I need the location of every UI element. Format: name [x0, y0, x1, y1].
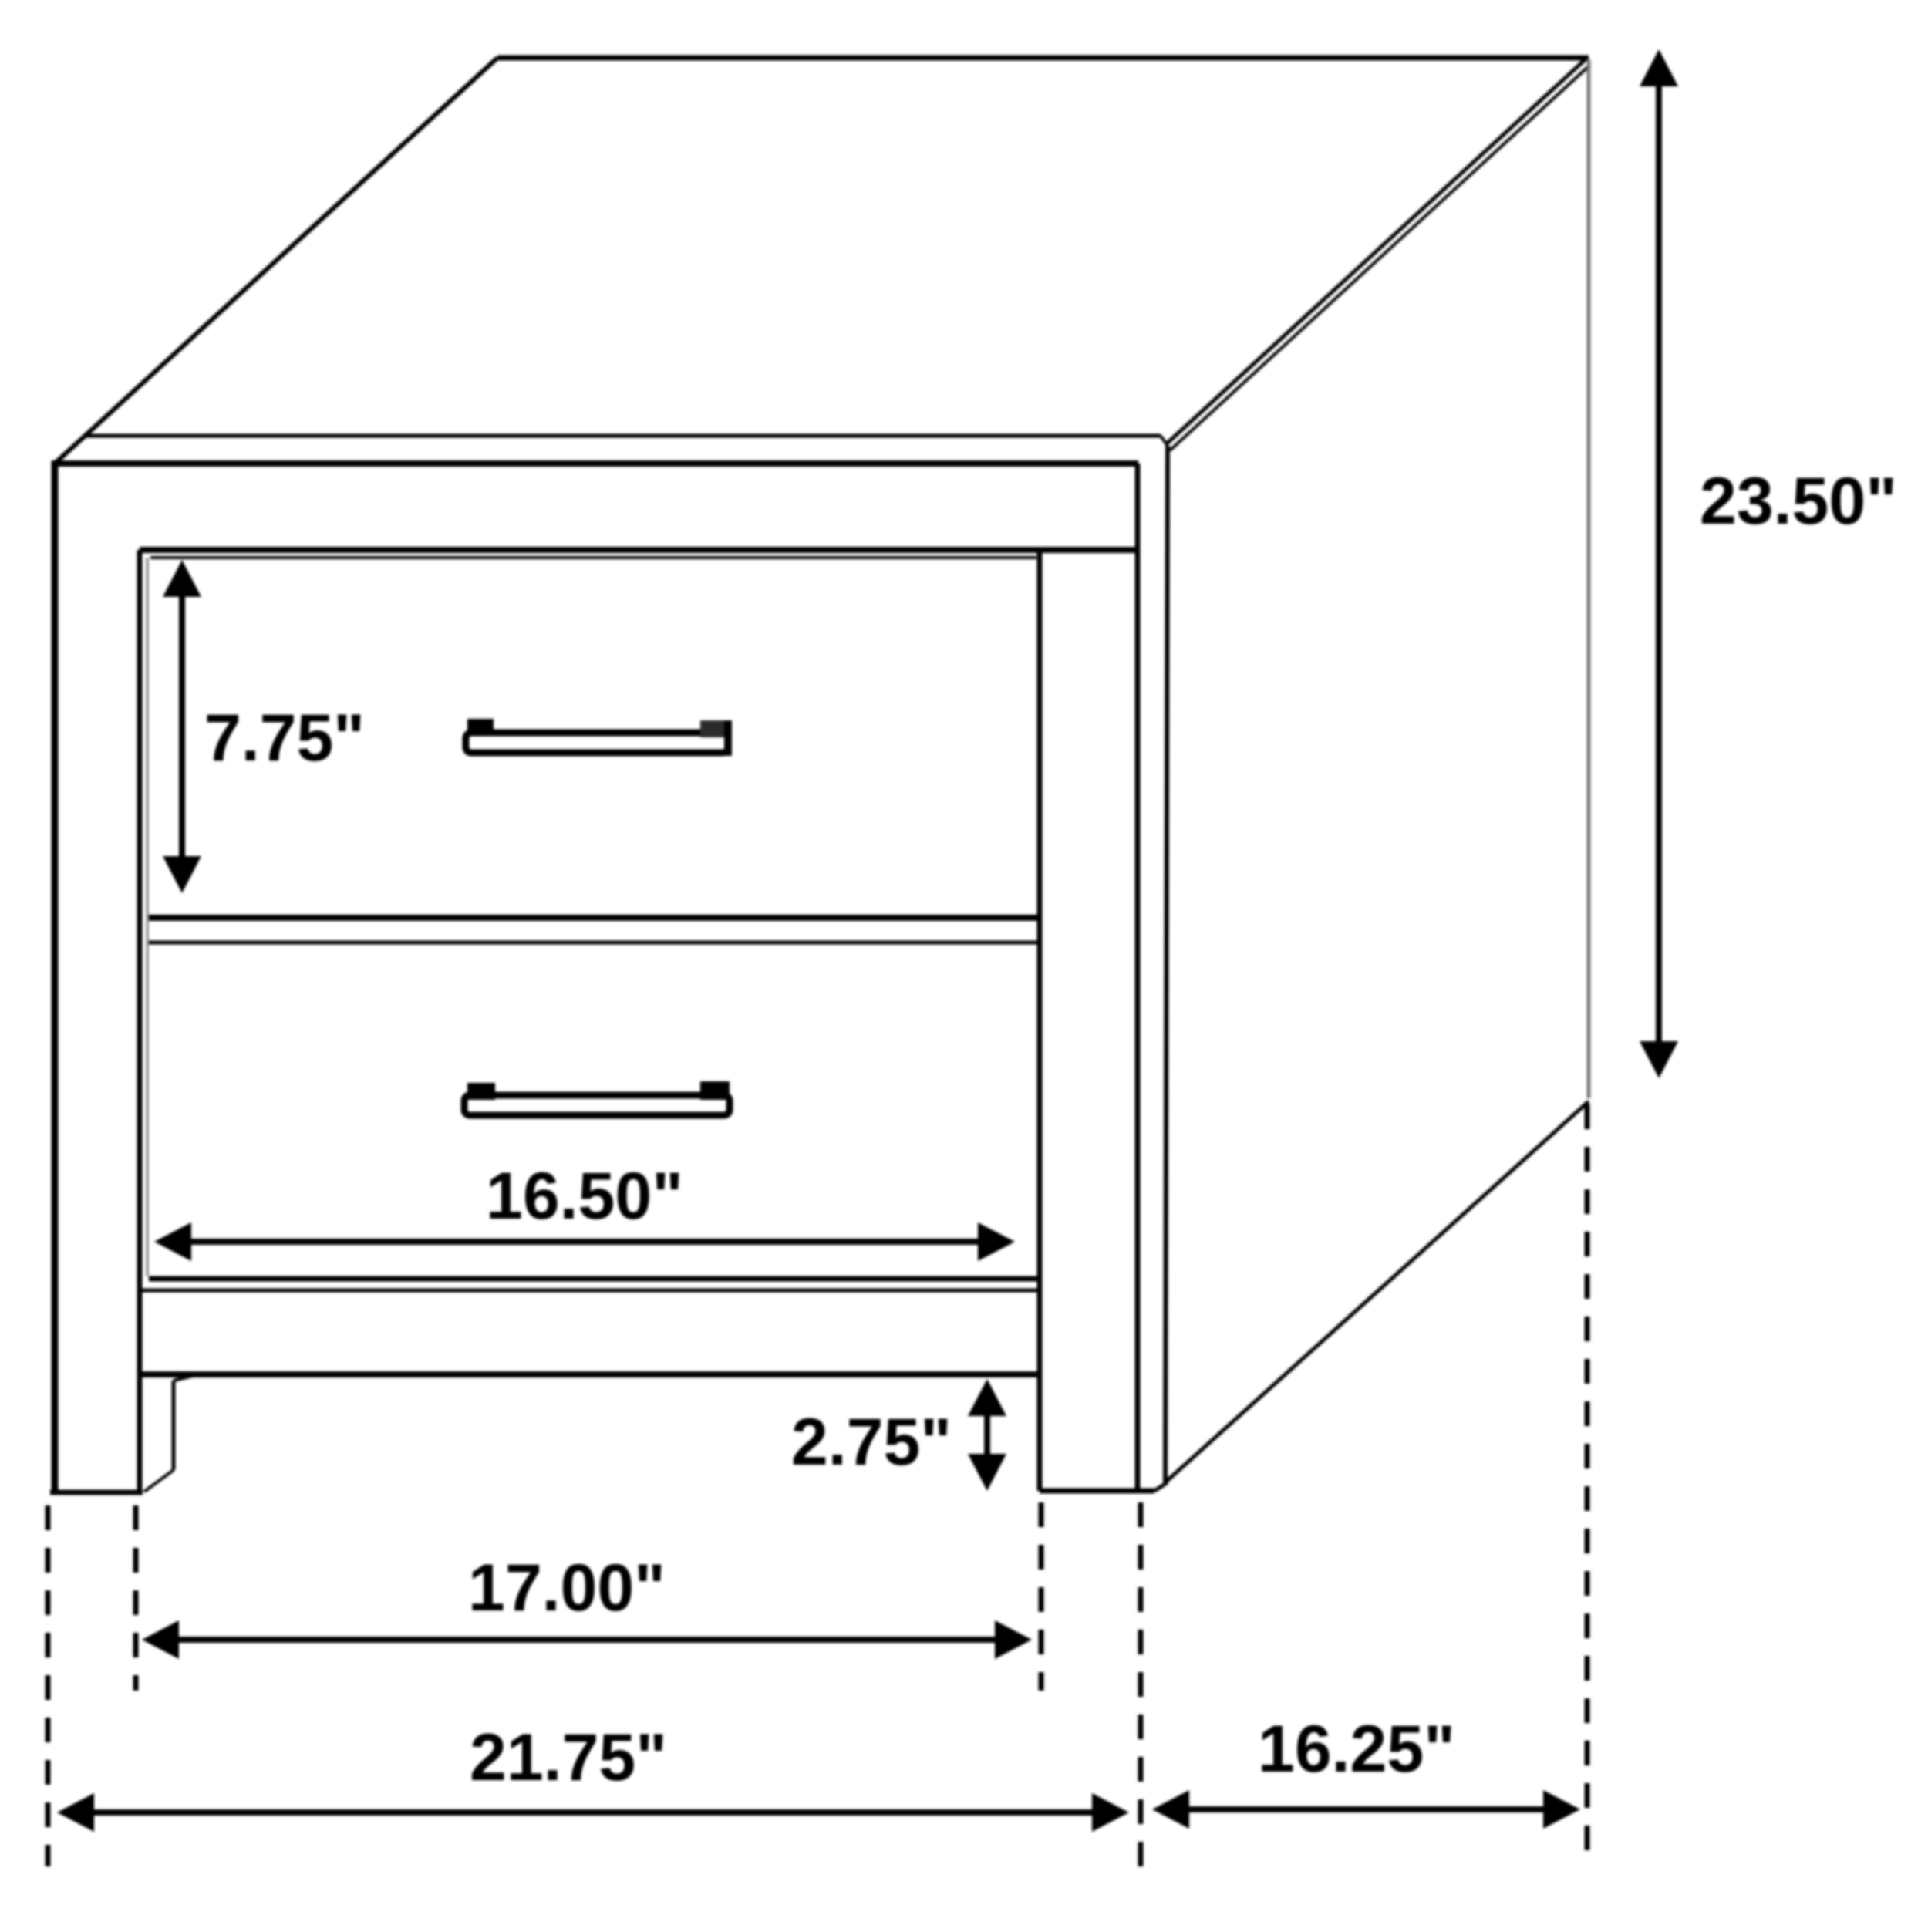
- svg-text:23.50": 23.50": [1700, 464, 1897, 538]
- svg-text:2.75": 2.75": [791, 1405, 952, 1479]
- svg-text:21.75": 21.75": [470, 1721, 667, 1795]
- svg-text:17.00": 17.00": [468, 1551, 666, 1625]
- svg-text:16.25": 16.25": [1258, 1712, 1455, 1786]
- svg-text:16.50": 16.50": [486, 1159, 683, 1233]
- svg-text:7.75": 7.75": [204, 701, 365, 775]
